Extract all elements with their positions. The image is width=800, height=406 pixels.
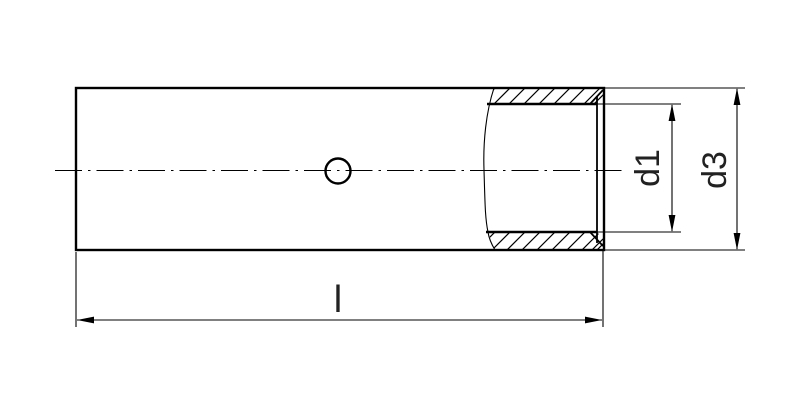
- drawing-page: d1 d3 l: [0, 0, 800, 406]
- technical-drawing-canvas: d1 d3 l: [0, 0, 800, 406]
- drawing-background: [0, 0, 800, 406]
- dimension-l-label: l: [334, 279, 342, 321]
- dimension-d1-label: d1: [629, 149, 667, 187]
- dimension-d3-label: d3: [696, 151, 734, 189]
